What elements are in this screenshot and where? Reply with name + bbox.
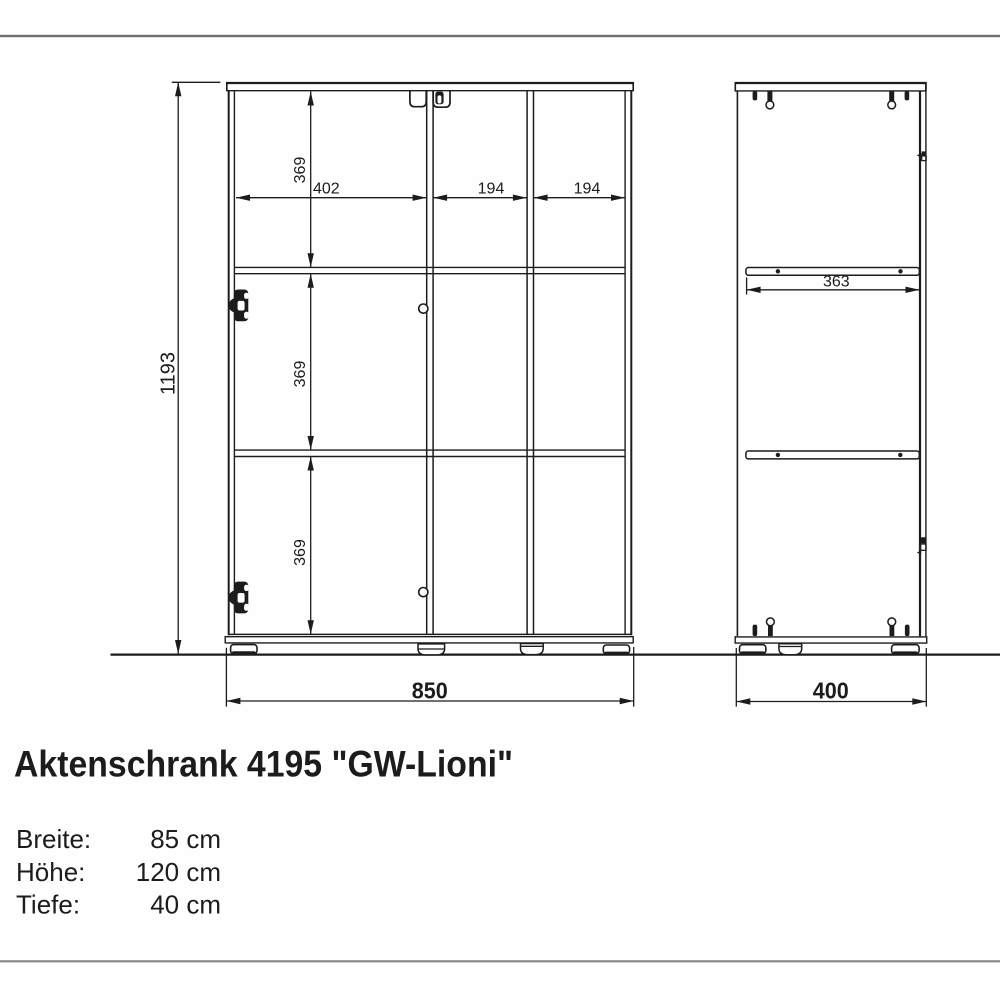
svg-text:363: 363 — [823, 274, 850, 291]
svg-text:400: 400 — [813, 677, 849, 703]
svg-text:194: 194 — [478, 180, 505, 197]
svg-text:40 cm: 40 cm — [150, 889, 221, 919]
svg-text:85 cm: 85 cm — [150, 824, 221, 854]
svg-text:194: 194 — [574, 180, 601, 197]
svg-text:369: 369 — [292, 539, 309, 566]
svg-text:Breite:: Breite: — [16, 824, 91, 854]
svg-text:402: 402 — [313, 180, 340, 197]
svg-text:850: 850 — [412, 677, 448, 703]
svg-text:Aktenschrank 4195 "GW-Lioni": Aktenschrank 4195 "GW-Lioni" — [14, 744, 513, 785]
svg-text:120 cm: 120 cm — [136, 857, 221, 887]
svg-text:Tiefe:: Tiefe: — [16, 889, 80, 919]
svg-text:1193: 1193 — [158, 352, 180, 395]
svg-text:369: 369 — [292, 361, 309, 388]
svg-text:Höhe:: Höhe: — [16, 857, 85, 887]
svg-text:369: 369 — [292, 157, 309, 184]
